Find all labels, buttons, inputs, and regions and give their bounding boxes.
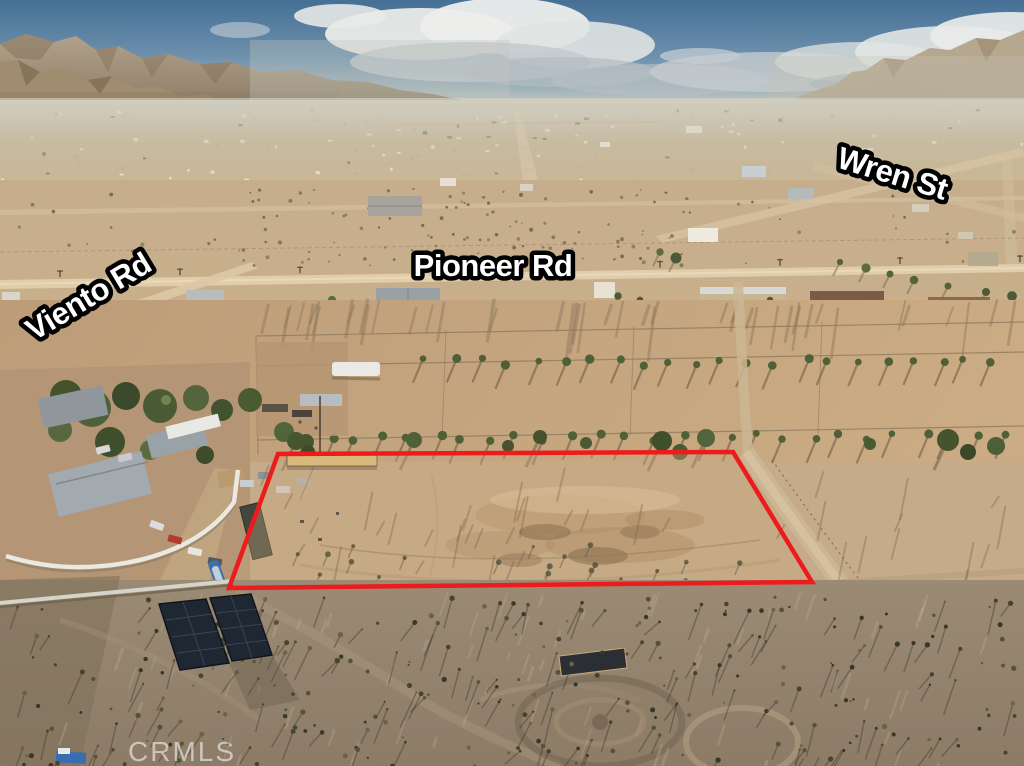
parcel-interior	[232, 452, 811, 587]
horizon-haze	[0, 98, 1024, 142]
aerial-photo-canvas: Wren St Pioneer Rd Viento Rd CRMLS	[0, 0, 1024, 766]
white-bus	[332, 362, 380, 376]
street-label-pioneer: Pioneer Rd	[414, 248, 573, 283]
aerial-photo: Wren St Pioneer Rd Viento Rd CRMLS	[0, 0, 1024, 766]
crmls-watermark: CRMLS	[128, 736, 236, 766]
mountain-range-left	[0, 34, 510, 108]
